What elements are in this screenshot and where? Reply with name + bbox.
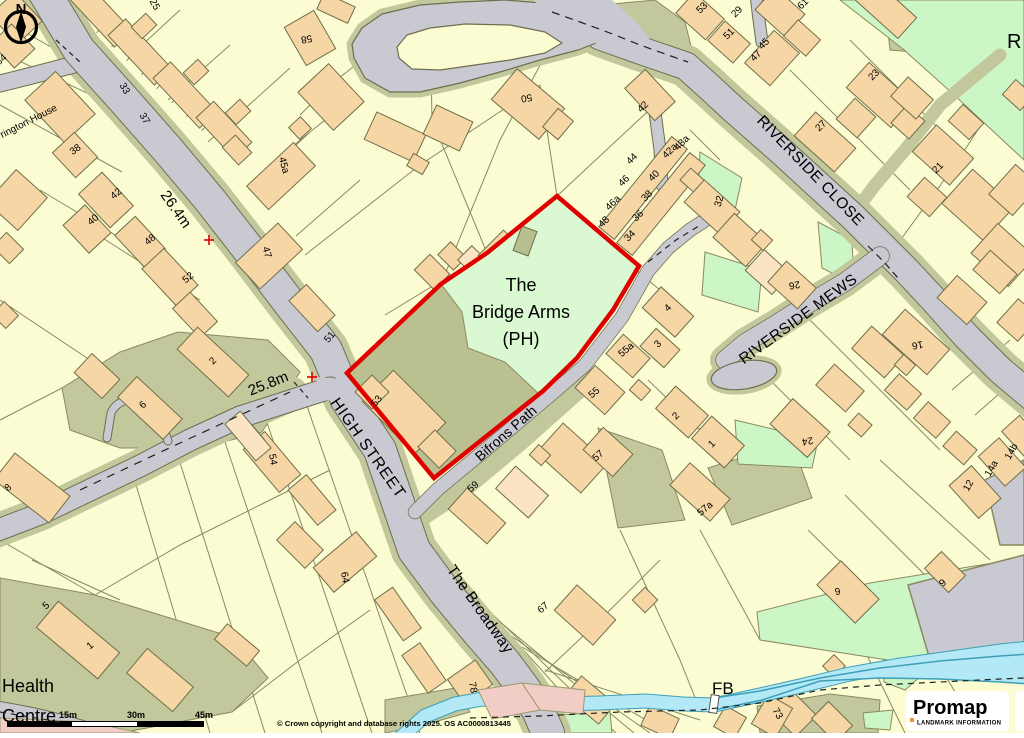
svg-text:R: R (1007, 31, 1021, 53)
svg-text:15m: 15m (59, 710, 77, 720)
svg-text:FB: FB (712, 679, 734, 698)
svg-text:LANDMARK INFORMATION: LANDMARK INFORMATION (917, 721, 1001, 727)
svg-text:© Crown copyright and database: © Crown copyright and database rights 20… (277, 719, 512, 728)
svg-text:45m: 45m (195, 710, 213, 720)
svg-text:(PH): (PH) (503, 329, 540, 349)
svg-text:30m: 30m (127, 710, 145, 720)
svg-text:The: The (505, 275, 536, 295)
svg-text:Health: Health (2, 676, 54, 696)
svg-text:Bridge Arms: Bridge Arms (472, 302, 570, 322)
svg-text:Promap: Promap (913, 697, 987, 719)
